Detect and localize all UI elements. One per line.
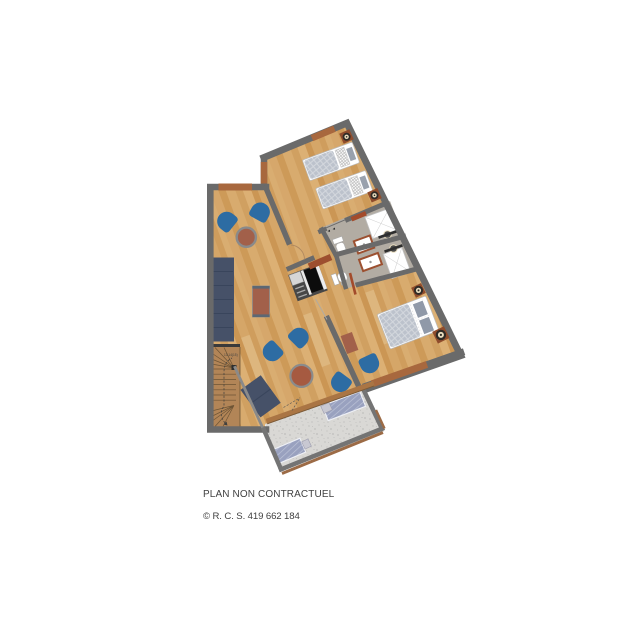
svg-text:13.14(15): 13.14(15) bbox=[224, 353, 238, 357]
